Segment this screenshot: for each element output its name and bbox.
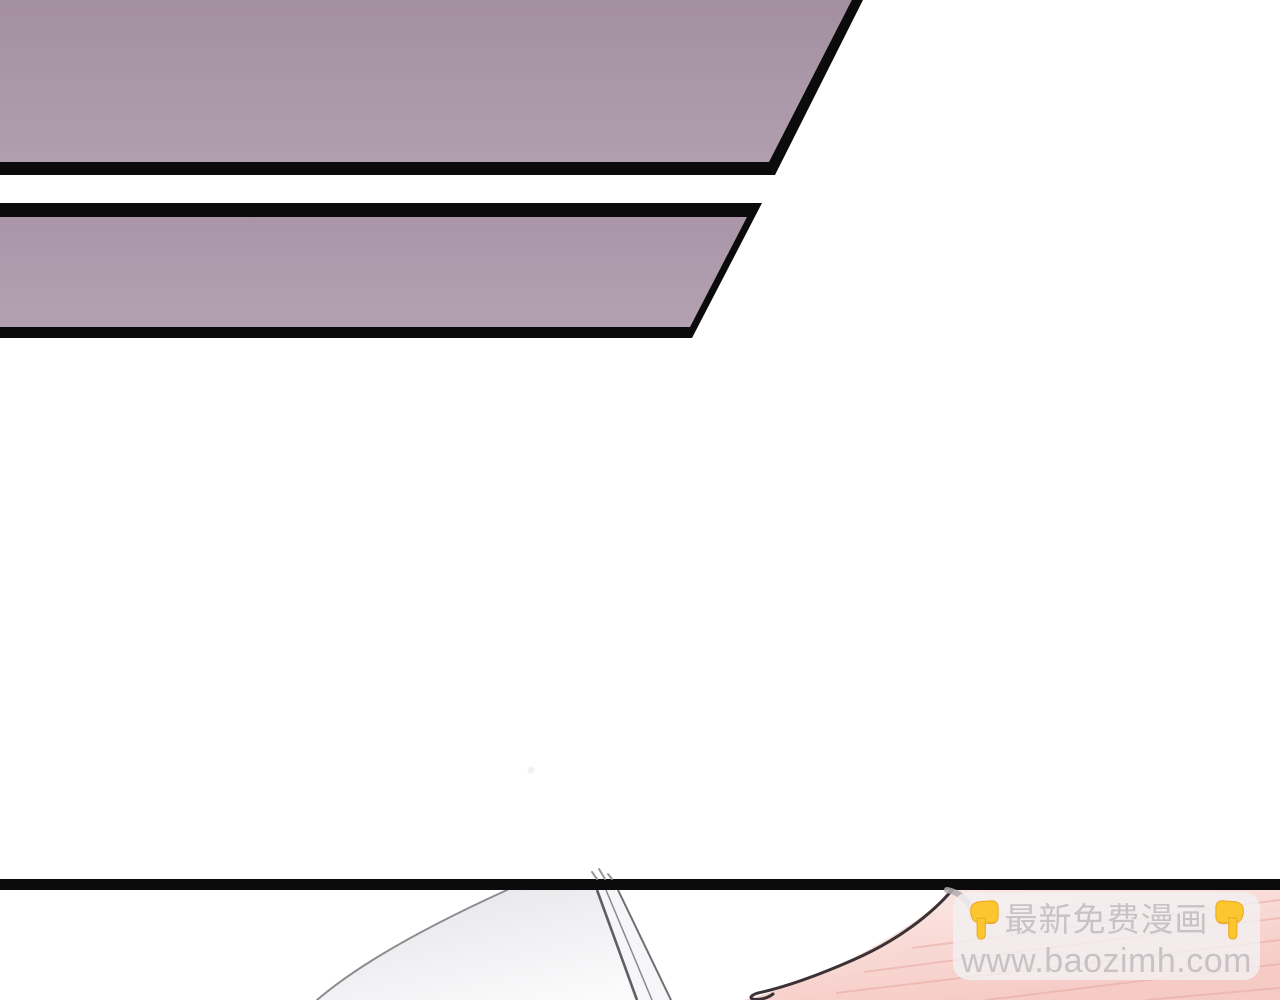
top-panel-2 xyxy=(0,203,762,338)
top-panel-1-fill xyxy=(0,0,858,162)
comic-page: 最新免费漫画 www.baozimh.com xyxy=(0,0,1280,1000)
pointing-down-emoji-left xyxy=(967,898,1000,940)
watermark-title: 最新免费漫画 xyxy=(1005,903,1209,936)
top-panel-1 xyxy=(0,0,869,175)
panel-divider-bar xyxy=(0,879,1280,890)
faint-dot xyxy=(528,767,535,774)
watermark-row-1: 最新免费漫画 xyxy=(967,896,1247,942)
pointing-down-emoji-right xyxy=(1214,898,1247,940)
comic-artwork xyxy=(0,0,1280,1000)
round-shape-shading xyxy=(317,890,634,1000)
blade-tip-marks xyxy=(592,869,612,879)
watermark-url: www.baozimh.com xyxy=(961,944,1252,978)
watermark-box: 最新免费漫画 www.baozimh.com xyxy=(953,892,1260,980)
top-panel-2-fill xyxy=(0,217,747,327)
